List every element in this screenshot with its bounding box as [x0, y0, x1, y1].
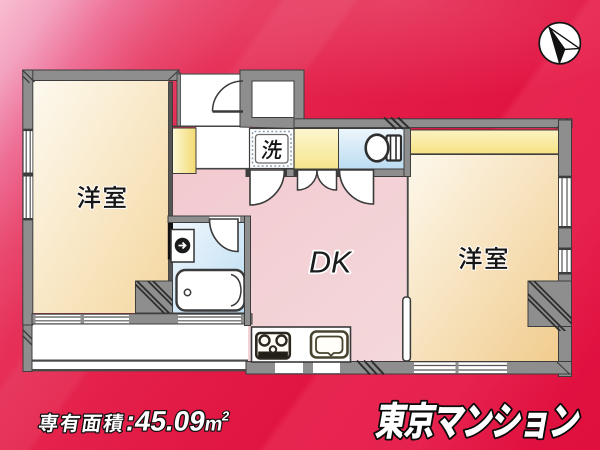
svg-text:2: 2 — [221, 409, 231, 424]
svg-text::45.09: :45.09 — [123, 405, 207, 437]
svg-text:DK: DK — [309, 246, 353, 280]
